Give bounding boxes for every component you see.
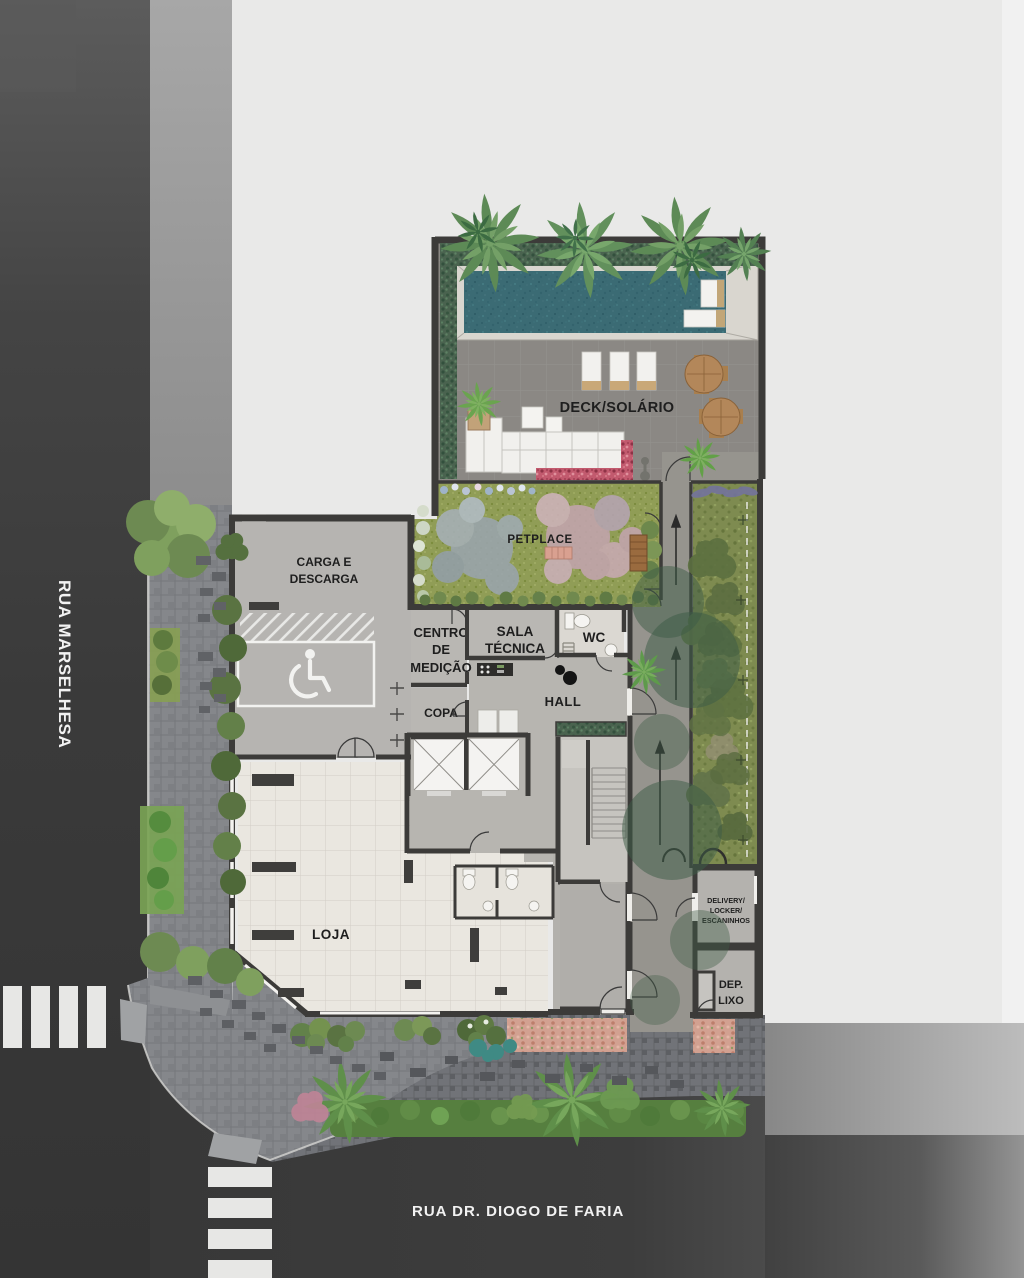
svg-text:PETPLACE: PETPLACE (507, 534, 572, 546)
svg-text:LOJA: LOJA (312, 927, 350, 942)
svg-text:DEP.: DEP. (719, 979, 743, 991)
svg-text:MEDIÇÃO: MEDIÇÃO (410, 660, 471, 675)
svg-text:SALA: SALA (497, 624, 534, 639)
svg-text:WC: WC (583, 630, 606, 645)
svg-text:RUA MARSELHESA: RUA MARSELHESA (55, 580, 74, 748)
svg-text:DECK/SOLÁRIO: DECK/SOLÁRIO (560, 399, 675, 416)
svg-text:CARGA E: CARGA E (297, 555, 352, 569)
svg-text:HALL: HALL (545, 694, 582, 709)
svg-text:DE: DE (432, 642, 450, 657)
svg-text:TÉCNICA: TÉCNICA (485, 641, 545, 656)
svg-text:CENTRO: CENTRO (414, 625, 469, 640)
svg-text:DELIVERY/: DELIVERY/ (707, 896, 745, 905)
svg-text:LIXO: LIXO (718, 995, 744, 1007)
svg-text:RUA DR. DIOGO DE FARIA: RUA DR. DIOGO DE FARIA (412, 1203, 624, 1220)
svg-text:LOCKER/: LOCKER/ (710, 906, 742, 915)
svg-text:DESCARGA: DESCARGA (290, 572, 359, 586)
